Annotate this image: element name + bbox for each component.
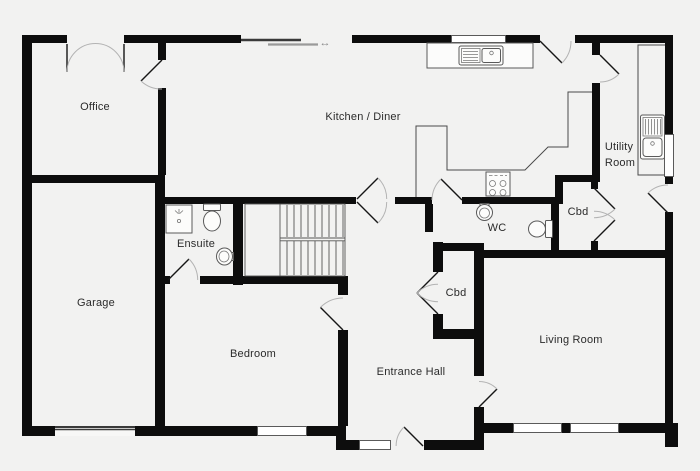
room-label-cbd-upper: Cbd	[568, 206, 589, 218]
living-room-door	[479, 382, 497, 408]
room-label-kitchen-diner: Kitchen / Diner	[325, 111, 400, 123]
cupboard-hall-doors	[417, 272, 438, 314]
cupboard-upper-doors	[594, 188, 615, 241]
rear-door	[648, 185, 668, 213]
staircase	[245, 204, 345, 276]
wc-toilet	[529, 221, 553, 238]
sliding-door-arrow-icon: ↔	[320, 37, 331, 49]
room-label-garage: Garage	[77, 297, 115, 309]
ensuite-door	[168, 259, 198, 280]
utility-sink	[641, 115, 665, 159]
ensuite-shower	[166, 205, 192, 233]
hob	[486, 172, 510, 196]
room-label-cbd-hall: Cbd	[446, 287, 467, 299]
room-label-bedroom: Bedroom	[230, 348, 276, 360]
utility-door	[600, 55, 619, 82]
hall-kitchen-doors	[357, 178, 387, 223]
plan-linework	[0, 0, 700, 471]
room-label-living-room: Living Room	[539, 334, 602, 346]
office-french-doors	[67, 43, 124, 72]
ensuite-toilet	[204, 204, 221, 231]
bedroom-door	[320, 298, 343, 330]
sliding-door	[241, 40, 318, 45]
room-label-wc: WC	[488, 222, 507, 234]
front-door	[396, 427, 423, 446]
room-label-office: Office	[80, 101, 110, 113]
room-label-ensuite: Ensuite	[177, 238, 215, 250]
kitchen-sink	[427, 43, 533, 68]
wc-door	[432, 179, 462, 200]
office-door	[141, 60, 162, 89]
room-label-utility-line2: Room	[605, 157, 635, 169]
kitchen-back-door	[540, 41, 571, 63]
room-label-entrance-hall: Entrance Hall	[377, 366, 446, 378]
wc-basin	[477, 204, 493, 221]
room-label-utility-line1: Utility	[605, 141, 633, 153]
floor-plan: Office Kitchen / Diner Utility Room Gara…	[0, 0, 700, 471]
ensuite-basin	[217, 248, 234, 265]
